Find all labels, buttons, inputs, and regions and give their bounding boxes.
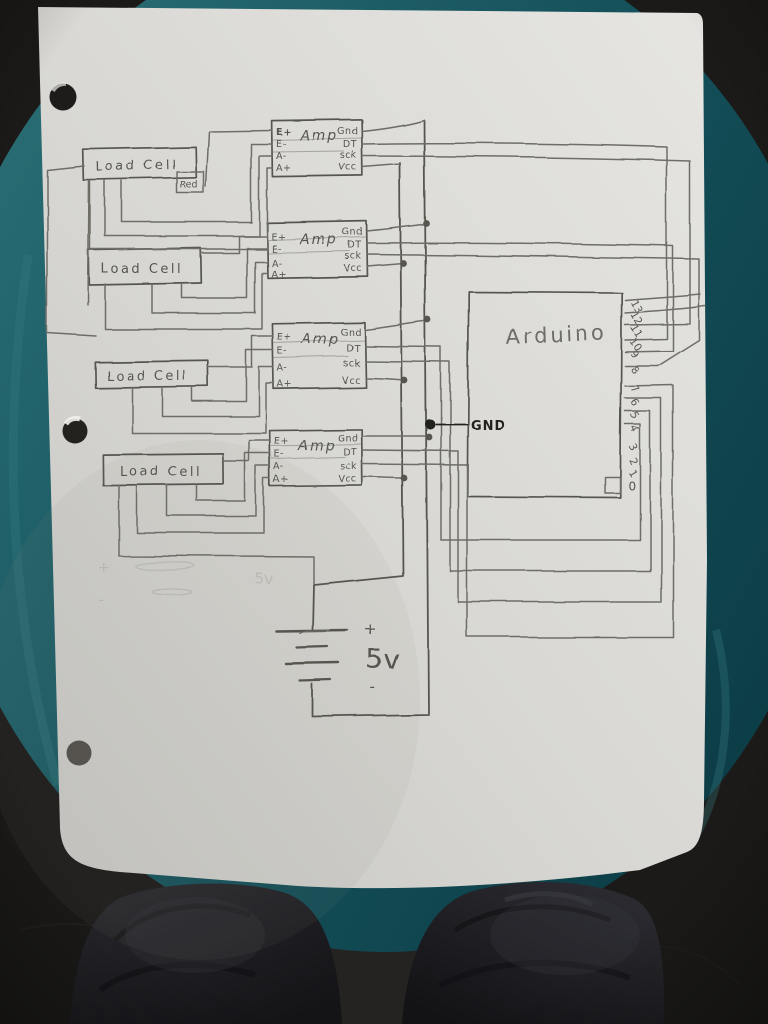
photo-vignette bbox=[0, 0, 768, 1024]
photo-of-hand-drawn-circuit: + - 5v Load Cell Red Load Cell Load Cell… bbox=[0, 0, 768, 1024]
photo-canvas: + - 5v Load Cell Red Load Cell Load Cell… bbox=[0, 0, 768, 1024]
